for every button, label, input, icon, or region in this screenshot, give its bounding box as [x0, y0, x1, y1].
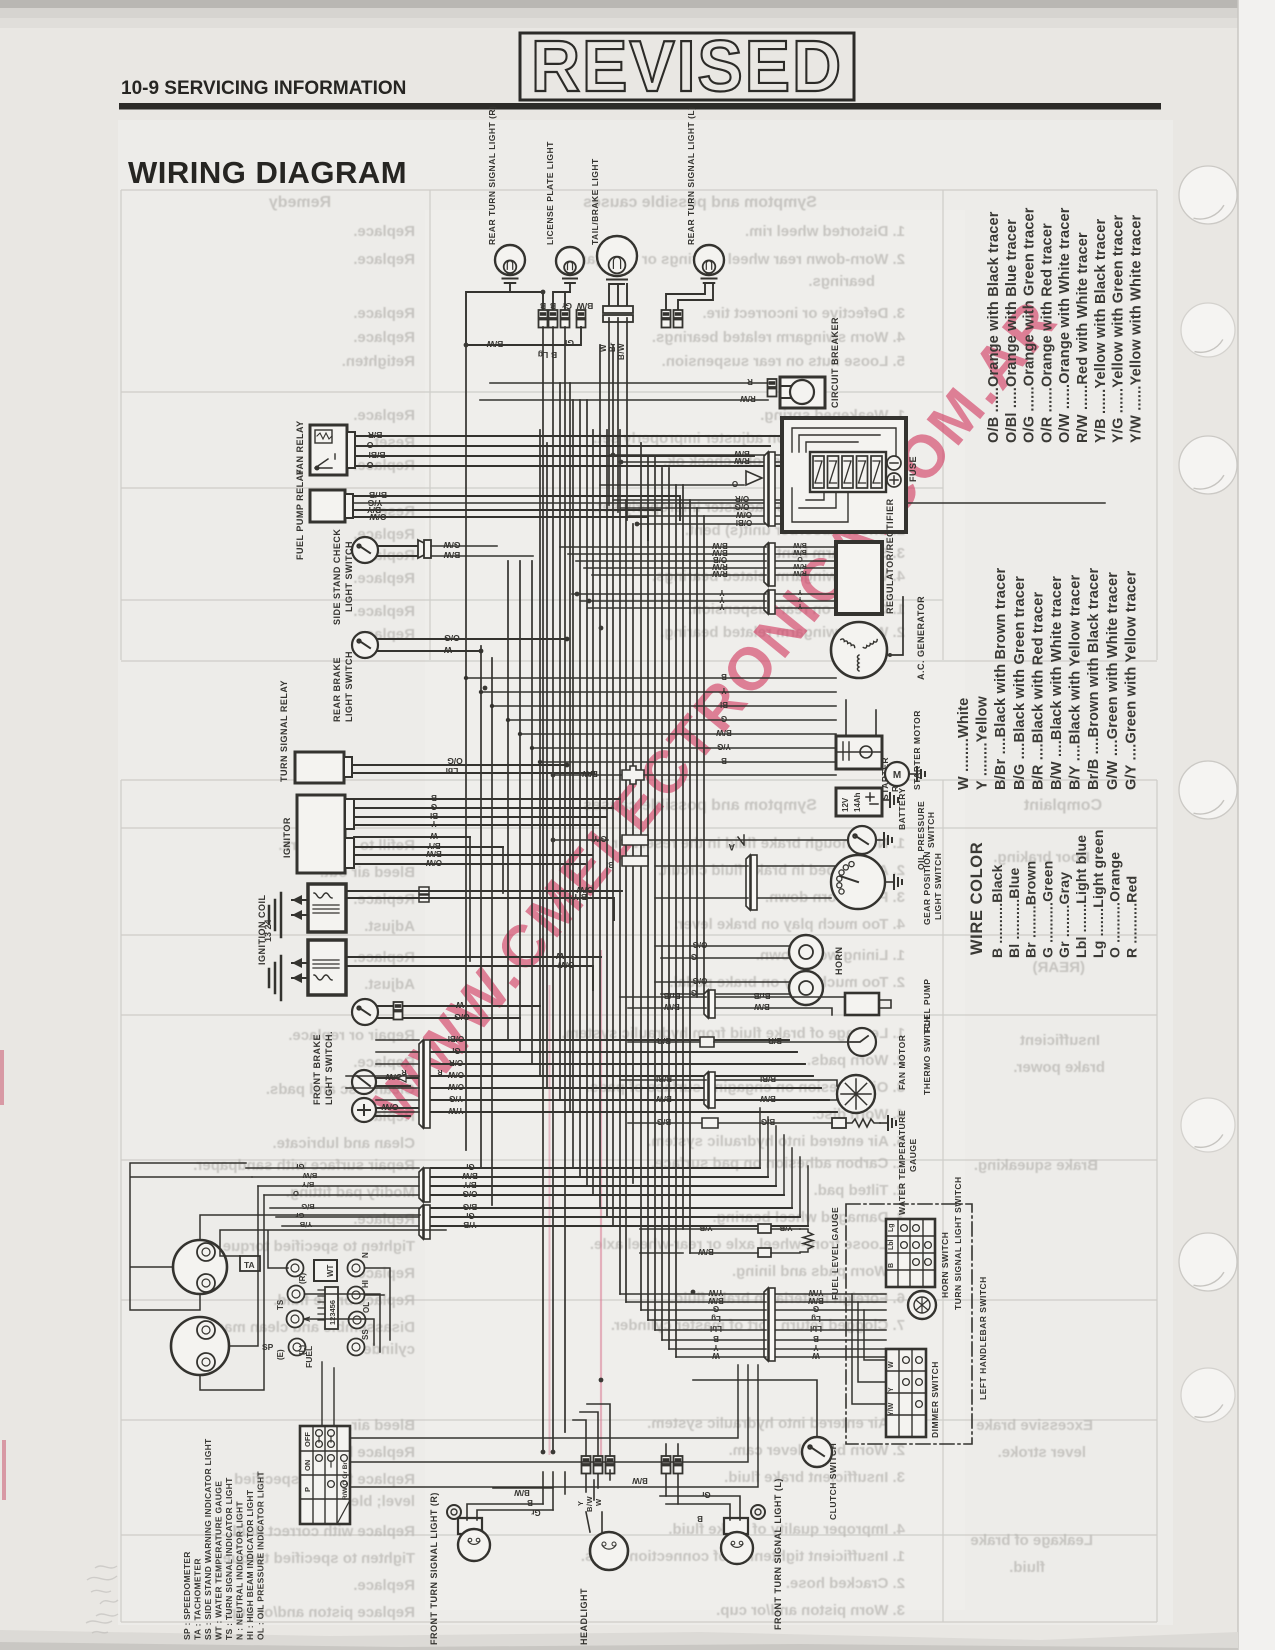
svg-text:B: B	[888, 1263, 895, 1268]
svg-text:123456: 123456	[328, 1300, 337, 1325]
svg-text:O/R: O/R	[735, 494, 749, 503]
svg-text:Y: Y	[576, 1500, 585, 1506]
svg-text:G: G	[431, 802, 437, 811]
svg-text:Y: Y	[813, 1343, 819, 1352]
svg-text:TURN SIGNAL LIGHT SWITCH: TURN SIGNAL LIGHT SWITCH	[953, 1176, 963, 1310]
svg-text:Bleed air.: Bleed air.	[348, 1417, 415, 1434]
svg-text:(REAR): (REAR)	[1033, 959, 1086, 976]
svg-text:IGNITOR: IGNITOR	[282, 817, 292, 858]
svg-text:B: B	[697, 1514, 703, 1523]
svg-text:N : NEUTRAL INDICATOR LIGHT: N : NEUTRAL INDICATOR LIGHT	[235, 1501, 245, 1640]
svg-text:A: A	[728, 842, 735, 852]
svg-text:B/W ....Black with White trace: B/W ....Black with White tracer	[1049, 576, 1065, 790]
svg-text:Lbl: Lbl	[710, 1324, 722, 1333]
svg-text:Y: Y	[431, 819, 437, 828]
svg-text:Y: Y	[888, 1387, 895, 1392]
svg-text:1. Air entered into hydraulic: 1. Air entered into hydraulic system.	[647, 1415, 905, 1432]
svg-text:Y ........Yellow: Y ........Yellow	[975, 695, 991, 790]
svg-text:O/W: O/W	[736, 510, 752, 519]
svg-text:B ..........Black: B ..........Black	[989, 864, 1005, 958]
svg-text:LIGHT SWITCH: LIGHT SWITCH	[933, 853, 943, 920]
svg-text:Insufficient: Insufficient	[1020, 1032, 1100, 1049]
svg-text:Lg .......Light green: Lg .......Light green	[1090, 829, 1106, 958]
svg-text:CIRCUIT BREAKER: CIRCUIT BREAKER	[830, 317, 840, 408]
svg-text:1. Carbon adhesion on pad sur: 1. Carbon adhesion on pad surface.	[651, 1155, 905, 1172]
svg-text:Bl ..........Blue: Bl ..........Blue	[1006, 867, 1022, 958]
svg-text:W: W	[594, 1498, 603, 1506]
svg-text:O/G: O/G	[693, 940, 708, 949]
svg-text:B/Y: B/Y	[302, 1180, 315, 1189]
svg-text:WT : WATER TEMPERATURE GAUG: WT : WATER TEMPERATURE GAUGE	[214, 1481, 224, 1640]
svg-text:B/Bl: B/Bl	[760, 1074, 776, 1083]
svg-text:Gr ........Gray: Gr ........Gray	[1056, 872, 1072, 958]
svg-text:B/G: B/G	[463, 1202, 477, 1211]
svg-text:O/Bl: O/Bl	[736, 518, 752, 527]
svg-text:Y: Y	[797, 595, 802, 602]
svg-text:Y/W ......Yellow with White tr: Y/W ......Yellow with White tracer	[1128, 214, 1144, 443]
svg-text:WIRE COLOR: WIRE COLOR	[968, 842, 986, 955]
svg-text:R: R	[747, 377, 753, 386]
svg-text:TURN SIGNAL RELAY: TURN SIGNAL RELAY	[279, 680, 289, 782]
svg-text:Lbl: Lbl	[810, 1324, 822, 1333]
svg-text:Bl: Bl	[720, 700, 728, 709]
svg-text:B/W: B/W	[576, 301, 594, 311]
svg-text:Y/G: Y/G	[717, 742, 731, 751]
svg-text:Y: Y	[797, 588, 802, 595]
svg-text:R/W: R/W	[793, 562, 807, 569]
svg-text:FUEL LEVEL GAUGE: FUEL LEVEL GAUGE	[830, 1207, 840, 1300]
svg-text:B: B	[721, 672, 727, 681]
svg-text:B: B	[551, 350, 557, 360]
svg-text:W: W	[888, 1361, 895, 1368]
svg-text:Repair or replace.: Repair or replace.	[288, 1027, 415, 1044]
svg-text:R/W O Gr Br: R/W O Gr Br	[342, 1462, 349, 1500]
svg-text:O/R ......Orange with Red trac: O/R ......Orange with Red tracer	[1039, 223, 1055, 443]
svg-text:ON: ON	[303, 1460, 312, 1471]
svg-text:B/W: B/W	[716, 728, 732, 737]
svg-text:B/Y: B/Y	[427, 841, 441, 850]
svg-text:Tighten to specified torque.: Tighten to specified torque.	[219, 1238, 415, 1255]
svg-text:R/W: R/W	[734, 456, 750, 465]
svg-text:HEADLIGHT: HEADLIGHT	[579, 1588, 589, 1645]
svg-text:B/Br ....Black with Brown trac: B/Br ....Black with Brown tracer	[993, 568, 1009, 790]
svg-text:G: G	[713, 1304, 719, 1313]
svg-text:G/Y: G/Y	[592, 834, 606, 843]
svg-text:G: G	[813, 1304, 819, 1313]
svg-text:Lbl: Lbl	[446, 766, 459, 776]
svg-text:Gr: Gr	[451, 1046, 460, 1055]
svg-text:SP : SPEEDOMETER: SP : SPEEDOMETER	[182, 1551, 192, 1640]
svg-text:O/Bl: O/Bl	[448, 1034, 464, 1043]
svg-text:Y/G ......Yellow with Green tr: Y/G ......Yellow with Green tracer	[1111, 214, 1127, 443]
svg-text:O/W: O/W	[448, 1082, 464, 1091]
svg-text:lever stroke.: lever stroke.	[998, 1444, 1086, 1461]
svg-text:O/G: O/G	[444, 633, 460, 643]
svg-text:B/Bl: B/Bl	[369, 450, 386, 460]
svg-text:14Ah: 14Ah	[853, 792, 862, 812]
svg-text:HORN: HORN	[834, 947, 844, 976]
svg-text:fluid.: fluid.	[1009, 1559, 1045, 1576]
svg-text:FRONT BRAKE: FRONT BRAKE	[312, 1034, 322, 1105]
svg-text:B/W: B/W	[664, 1002, 680, 1011]
svg-text:SS : SIDE STAND WARNING IN: SS : SIDE STAND WARNING INDICATOR LIGHT	[203, 1438, 213, 1640]
svg-text:Y/B: Y/B	[299, 1220, 312, 1229]
svg-text:Y/W: Y/W	[708, 1288, 724, 1297]
svg-text:Replace.: Replace.	[353, 251, 415, 268]
svg-text:W: W	[712, 1351, 720, 1360]
svg-text:1. Lining worn down.: 1. Lining worn down.	[756, 947, 905, 964]
svg-text:R/W: R/W	[740, 394, 756, 403]
svg-text:R/W ......Red with White trace: R/W ......Red with White tracer	[1075, 232, 1091, 443]
svg-text:B/W: B/W	[302, 1171, 318, 1180]
svg-text:R ..........Red: R ..........Red	[1123, 876, 1139, 958]
svg-text:O: O	[366, 440, 373, 450]
svg-text:B/R: B/R	[368, 430, 383, 440]
svg-text:B/G ....Black with Green trace: B/G ....Black with Green tracer	[1012, 576, 1028, 790]
svg-text:Gr: Gr	[296, 1162, 305, 1171]
svg-text:4. Worn swingarm related bear: 4. Worn swingarm related bearings.	[652, 329, 905, 346]
svg-text:FAN MOTOR: FAN MOTOR	[897, 1035, 907, 1090]
svg-text:Replace.: Replace.	[353, 603, 415, 620]
svg-text:B/G: B/G	[301, 1202, 315, 1211]
svg-text:Replace.: Replace.	[353, 891, 415, 908]
svg-text:B/Bl: B/Bl	[656, 1074, 672, 1083]
svg-text:FAN RELAY: FAN RELAY	[295, 420, 305, 475]
svg-text:TS: TS	[276, 1299, 285, 1310]
svg-text:GAUGE: GAUGE	[908, 1138, 918, 1172]
svg-text:G/Y ....Green with Yellow trac: G/Y ....Green with Yellow tracer	[1123, 570, 1139, 790]
svg-text:LIGHT SWITCH: LIGHT SWITCH	[344, 651, 354, 722]
svg-text:Clean and lubricate.: Clean and lubricate.	[272, 1135, 415, 1152]
svg-text:10-9 SERVICING INFORMATION: 10-9 SERVICING INFORMATION	[121, 78, 406, 99]
svg-text:Y/B: Y/B	[779, 1223, 793, 1232]
svg-text:R: R	[437, 1068, 442, 1075]
svg-text:O/G ......Orange with Green tr: O/G ......Orange with Green tracer	[1022, 207, 1038, 443]
svg-text:REAR TURN SIGNAL LIGHT (R): REAR TURN SIGNAL LIGHT (R)	[487, 106, 497, 245]
svg-text:O/G: O/G	[693, 976, 708, 985]
svg-text:(R): (R)	[298, 1273, 307, 1284]
svg-text:A.C. GENERATOR: A.C. GENERATOR	[916, 596, 926, 680]
svg-text:M: M	[893, 770, 901, 781]
svg-text:Y/G: Y/G	[449, 1094, 463, 1103]
svg-text:B/W: B/W	[656, 1094, 672, 1103]
svg-text:Y: Y	[719, 602, 725, 611]
svg-text:Complaint: Complaint	[1023, 797, 1102, 814]
svg-text:2. Cracked hose.: 2. Cracked hose.	[786, 1575, 905, 1592]
svg-text:5. Loose nuts on rear suspens: 5. Loose nuts on rear suspension.	[662, 353, 905, 370]
svg-text:SWITCH: SWITCH	[926, 811, 936, 848]
svg-text:R/W: R/W	[712, 569, 728, 578]
svg-text:B: B	[813, 1334, 819, 1343]
svg-text:O/G: O/G	[735, 502, 750, 511]
svg-text:Replace.: Replace.	[353, 329, 415, 346]
svg-text:Leakage of brake: Leakage of brake	[970, 1532, 1093, 1549]
svg-text:Excessive brake: Excessive brake	[976, 1417, 1093, 1434]
svg-text:B/W: B/W	[462, 1171, 478, 1180]
svg-text:O: O	[732, 479, 738, 488]
svg-text:B: B	[540, 301, 546, 311]
svg-text:HORN SWITCH: HORN SWITCH	[940, 1232, 950, 1298]
svg-text:WATER TEMPERATURE: WATER TEMPERATURE	[897, 1110, 907, 1215]
svg-text:Replace.: Replace.	[353, 1577, 415, 1594]
svg-text:B/W: B/W	[514, 1488, 530, 1497]
svg-text:B/W: B/W	[632, 1476, 648, 1485]
svg-text:SS: SS	[361, 1329, 370, 1340]
svg-text:brake power.: brake power.	[1013, 1059, 1105, 1076]
svg-text:Gr: Gr	[701, 1490, 710, 1499]
svg-text:P: P	[303, 1487, 312, 1492]
svg-text:O/G: O/G	[447, 756, 463, 766]
svg-text:Lbl: Lbl	[888, 1239, 895, 1250]
svg-text:O/G: O/G	[454, 1012, 470, 1022]
svg-text:TA: TA	[244, 1260, 255, 1270]
svg-text:Replace.: Replace.	[353, 305, 415, 322]
svg-text:O ..........Orange: O ..........Orange	[1107, 852, 1123, 958]
svg-text:Y/B: Y/B	[699, 1223, 713, 1232]
svg-text:DIMMER SWITCH: DIMMER SWITCH	[930, 1361, 940, 1438]
svg-text:FUSE: FUSE	[908, 456, 918, 482]
svg-text:O/R: O/R	[449, 1058, 463, 1067]
svg-text:Adjust.: Adjust.	[364, 918, 415, 935]
svg-text:Lbl .......Light blue: Lbl .......Light blue	[1073, 835, 1089, 958]
svg-text:REGULATOR/RECTIFIER: REGULATOR/RECTIFIER	[885, 498, 895, 614]
svg-text:Y: Y	[721, 686, 727, 695]
svg-text:Gr: Gr	[465, 1162, 474, 1171]
svg-text:B/W: B/W	[793, 541, 807, 548]
svg-text:2. Tilted pad.: 2. Tilted pad.	[814, 1182, 905, 1199]
svg-text:FRONT TURN SIGNAL LIGHT (R: FRONT TURN SIGNAL LIGHT (R)	[429, 1492, 439, 1645]
svg-text:B/Y: B/Y	[463, 1180, 477, 1189]
svg-text:B: B	[721, 756, 727, 765]
svg-text:Remedy: Remedy	[269, 194, 331, 211]
svg-text:O: O	[366, 460, 373, 470]
svg-text:W: W	[430, 831, 438, 840]
svg-text:B/Y ....Black with Yellow trac: B/Y ....Black with Yellow tracer	[1068, 574, 1084, 790]
svg-text:Br/B: Br/B	[663, 991, 680, 1000]
svg-text:R/W: R/W	[793, 569, 807, 576]
svg-text:O: O	[797, 555, 803, 562]
svg-text:OFF: OFF	[303, 1432, 312, 1447]
svg-text:B/R: B/R	[768, 1036, 782, 1045]
svg-text:W: W	[443, 645, 452, 655]
svg-text:Gr: Gr	[561, 301, 572, 311]
svg-text:TS : TURN SIGNAL INDICATOR: TS : TURN SIGNAL INDICATOR LIGHT	[224, 1477, 234, 1640]
svg-text:Y: Y	[713, 1343, 719, 1352]
svg-text:O/W: O/W	[448, 1070, 464, 1079]
svg-text:WIRING DIAGRAM: WIRING DIAGRAM	[128, 155, 407, 190]
svg-text:B/W: B/W	[426, 849, 442, 858]
svg-text:G: G	[691, 988, 697, 997]
svg-text:Br ........Brown: Br ........Brown	[1023, 861, 1039, 958]
svg-text:Y: Y	[797, 602, 802, 609]
svg-text:1. Distorted wheel rim.: 1. Distorted wheel rim.	[745, 223, 905, 240]
svg-text:HI : HIGH BEAM INDICATOR L: HI : HIGH BEAM INDICATOR LIGHT	[245, 1489, 255, 1640]
svg-text:Replace.: Replace.	[353, 407, 415, 424]
svg-text:12V: 12V	[841, 797, 850, 812]
svg-text:SIDE STAND CHECK: SIDE STAND CHECK	[332, 529, 342, 625]
svg-text:B: B	[713, 1334, 719, 1343]
svg-text:B/G: B/G	[761, 1117, 775, 1126]
svg-text:N: N	[361, 1252, 370, 1258]
svg-text:LICENSE PLATE LIGHT: LICENSE PLATE LIGHT	[545, 141, 555, 245]
svg-text:B: B	[431, 793, 437, 802]
svg-text:4. Too much play on brake lev: 4. Too much play on brake lever.	[674, 916, 905, 933]
svg-text:Adjust.: Adjust.	[364, 976, 415, 993]
svg-text:B/W: B/W	[708, 1296, 724, 1305]
svg-text:O/W: O/W	[426, 858, 442, 867]
svg-text:TAIL/BRAKE LIGHT: TAIL/BRAKE LIGHT	[590, 158, 600, 245]
svg-text:O/W: O/W	[381, 1102, 399, 1112]
svg-text:Y/W: Y/W	[808, 1288, 824, 1297]
svg-text:5. Worn pads and lining.: 5. Worn pads and lining.	[732, 1263, 905, 1280]
svg-text:FUEL PUMP RELAY: FUEL PUMP RELAY	[295, 469, 305, 560]
svg-text:B/W: B/W	[585, 1496, 594, 1513]
svg-text:O: O	[293, 1189, 299, 1198]
svg-text:O/W: O/W	[557, 960, 575, 970]
svg-text:3. Insufficient brake fluid.: 3. Insufficient brake fluid.	[724, 1469, 905, 1486]
svg-text:W ........White: W ........White	[956, 698, 972, 790]
svg-text:G ..........Green: G ..........Green	[1039, 860, 1055, 958]
svg-text:FRONT TURN SIGNAL LIGHT (L: FRONT TURN SIGNAL LIGHT (L)	[773, 1478, 783, 1630]
svg-text:3. Defective or incorrect tir: 3. Defective or incorrect tire.	[702, 305, 905, 322]
svg-text:G: G	[691, 952, 697, 961]
svg-text:B/W: B/W	[760, 1094, 776, 1103]
svg-text:HI: HI	[361, 1280, 370, 1288]
svg-text:Bl: Bl	[430, 811, 438, 820]
svg-text:G/W ....Green with White trace: G/W ....Green with White tracer	[1105, 572, 1121, 790]
svg-text:LEFT HANDLEBAR SWITCH: LEFT HANDLEBAR SWITCH	[978, 1276, 988, 1400]
svg-text:B/R ....Black with Red tracer: B/R ....Black with Red tracer	[1030, 591, 1046, 790]
svg-text:B/W: B/W	[486, 339, 504, 349]
svg-text:Replace.: Replace.	[353, 223, 415, 240]
svg-text:B/W: B/W	[793, 548, 807, 555]
svg-text:OL: OL	[362, 1302, 371, 1313]
svg-text:3. Worn piston and/or cup.: 3. Worn piston and/or cup.	[716, 1602, 905, 1619]
svg-text:6. Foreign material in brake: 6. Foreign material in brake fluid.	[670, 1290, 905, 1307]
svg-text:B/W: B/W	[754, 1002, 770, 1011]
svg-text:Gr: Gr	[465, 1211, 474, 1220]
svg-text:O/Bl .....Orange with Blue tra: O/Bl .....Orange with Blue tracer	[1004, 219, 1020, 443]
svg-text:Br/B: Br/B	[753, 991, 770, 1000]
svg-text:Replace.: Replace.	[353, 570, 415, 587]
svg-text:W: W	[455, 1000, 464, 1010]
svg-text:O/W ......Orange with White tr: O/W ......Orange with White tracer	[1057, 207, 1073, 443]
svg-text:Brake squeaking.: Brake squeaking.	[974, 1157, 1098, 1174]
svg-text:Y/B: Y/B	[463, 1220, 477, 1229]
svg-text:Y/W: Y/W	[888, 1402, 895, 1416]
svg-text:Lg: Lg	[811, 1314, 821, 1323]
svg-text:G/W: G/W	[443, 540, 461, 550]
svg-text:B: B	[550, 301, 556, 311]
svg-text:B/G: B/G	[657, 1117, 671, 1126]
svg-text:O/W: O/W	[369, 512, 387, 522]
svg-text:O/G: O/G	[463, 1189, 478, 1198]
svg-text:B/R: B/R	[657, 1036, 671, 1045]
svg-text:4. Loose front-wheel axle or: 4. Loose front-wheel axle or rear-wheel …	[590, 1236, 905, 1253]
svg-text:Bl: Bl	[606, 860, 614, 869]
svg-text:bearings.: bearings.	[808, 273, 875, 290]
svg-text:Lg: Lg	[711, 1314, 721, 1323]
svg-text:Br/B ....Brown with Black trac: Br/B ....Brown with Black tracer	[1086, 568, 1102, 790]
svg-text:W: W	[555, 951, 564, 961]
svg-text:Lg: Lg	[888, 1223, 895, 1232]
svg-text:FUEL: FUEL	[304, 1346, 314, 1368]
svg-text:Y/W: Y/W	[448, 1106, 464, 1115]
svg-text:W: W	[812, 1351, 820, 1360]
svg-text:B/W: B/W	[698, 1247, 714, 1256]
svg-text:TA : TACHOMETER: TA : TACHOMETER	[193, 1558, 203, 1640]
svg-text:WT: WT	[326, 1264, 335, 1277]
svg-text:Gr: Gr	[531, 1508, 540, 1517]
svg-text:B: B	[527, 1498, 533, 1507]
svg-text:REAR BRAKE: REAR BRAKE	[332, 657, 342, 722]
svg-text:Retighten.: Retighten.	[342, 353, 415, 370]
svg-text:BATTERY: BATTERY	[897, 787, 907, 830]
svg-text:LIGHT SWITCH.: LIGHT SWITCH.	[324, 1031, 334, 1105]
svg-text:O/B ......Orange with Black tr: O/B ......Orange with Black tracer	[986, 211, 1002, 443]
svg-text:(E): (E)	[276, 1349, 285, 1360]
svg-text:Symptom and possible causes: Symptom and possible causes	[583, 194, 817, 211]
svg-text:REVISED: REVISED	[531, 27, 843, 107]
svg-text:Y/B ......Yellow with Black tr: Y/B ......Yellow with Black tracer	[1093, 218, 1109, 443]
svg-text:B/W: B/W	[582, 769, 598, 778]
svg-text:B/W: B/W	[808, 1296, 824, 1305]
svg-text:GEAR POSITION: GEAR POSITION	[922, 851, 932, 925]
svg-text:B/W: B/W	[443, 550, 461, 560]
svg-text:REAR TURN SIGNAL LIGHT (L): REAR TURN SIGNAL LIGHT (L)	[686, 107, 696, 245]
svg-text:OL : OIL PRESSURE INDICATOR: OL : OIL PRESSURE INDICATOR LIGHT	[256, 1471, 266, 1640]
svg-text:B/Y: B/Y	[573, 892, 588, 902]
svg-text:G: G	[721, 714, 727, 723]
svg-text:R: R	[401, 1068, 406, 1075]
svg-text:THERMO SWITCH: THERMO SWITCH	[922, 1016, 932, 1095]
